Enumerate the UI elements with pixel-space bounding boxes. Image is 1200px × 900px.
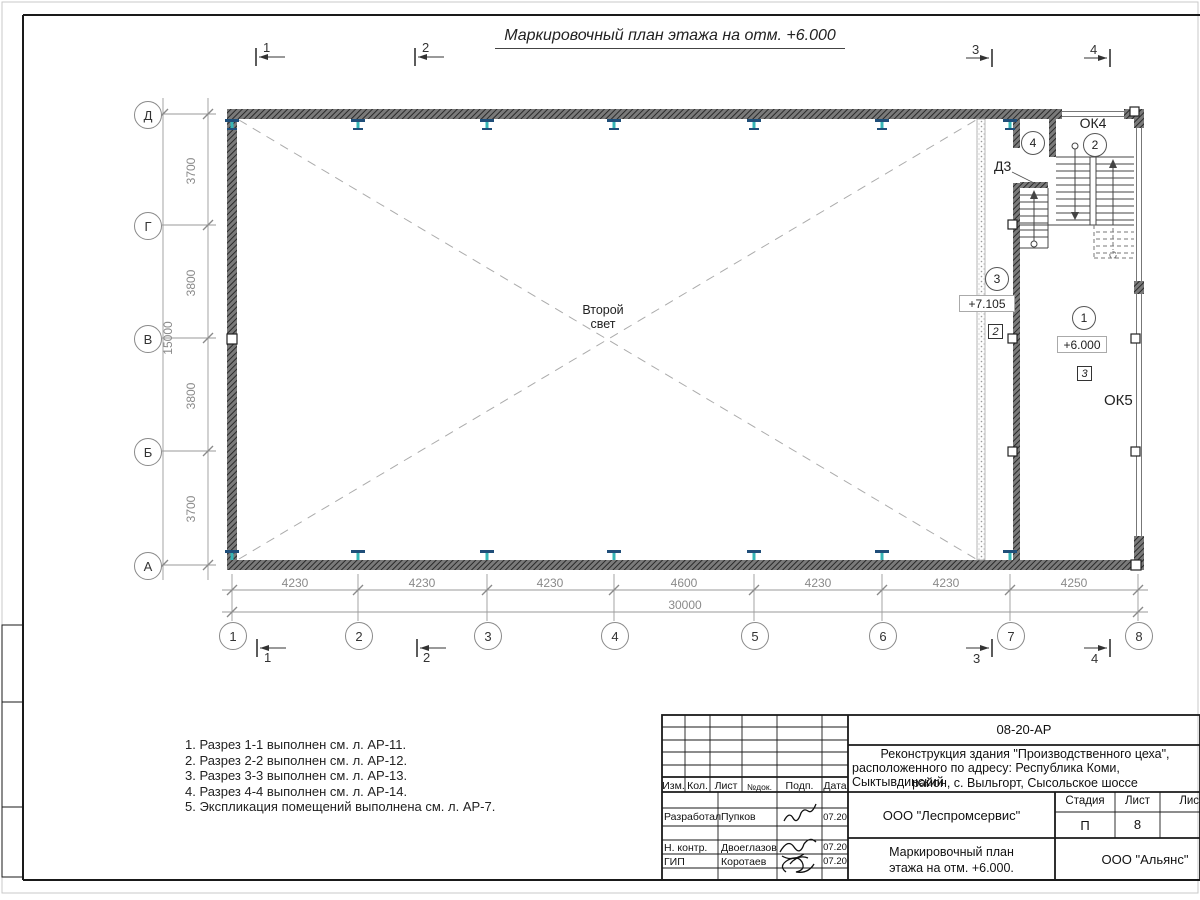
column-top-row	[225, 119, 1017, 130]
grid-col-3: 3	[474, 622, 502, 650]
grid-row-A: А	[134, 552, 162, 580]
dim-h-seg-5: 4230	[788, 576, 848, 590]
dim-v-seg-1: 3700	[184, 146, 198, 196]
grid-col-1: 1	[219, 622, 247, 650]
room-mark-3: 3	[985, 267, 1009, 291]
elevation-mark-7105: +7.105	[959, 295, 1015, 312]
titleblock-stage-value: П	[1055, 818, 1115, 833]
note-line: 1. Разрез 1-1 выполнен см. л. АР-11.	[185, 737, 495, 753]
grid-col-6: 6	[869, 622, 897, 650]
page-title: Маркировочный план этажа на отм. +6.000	[495, 27, 845, 49]
type-mark-2: 2	[988, 324, 1003, 339]
section-mark-1-top: 1	[263, 40, 270, 55]
titleblock-col-data: Дата	[822, 780, 848, 792]
titleblock-sheets-label: Листов	[1160, 795, 1200, 807]
section-mark-4-top: 4	[1090, 42, 1097, 57]
grid-row-B: Б	[134, 438, 162, 466]
dim-h-seg-6: 4230	[916, 576, 976, 590]
post-markers	[227, 107, 1141, 570]
second-light-diagonals	[239, 120, 976, 559]
section-mark-1-bottom: 1	[264, 650, 271, 665]
titleblock-date-2: 07.20	[822, 842, 848, 853]
titleblock-project-line3: район, с. Выльгорт, Сысольское шоссе	[850, 776, 1200, 790]
titleblock-col-kol: Кол.	[685, 780, 710, 792]
titleblock-col-ndok: №док.	[742, 782, 777, 792]
section-mark-3-top: 3	[972, 42, 979, 57]
drawing-sheet: Маркировочный план этажа на отм. +6.000 …	[0, 0, 1200, 900]
room-mark-1: 1	[1072, 306, 1096, 330]
dim-h-seg-2: 4230	[392, 576, 452, 590]
note-line: 2. Разрез 2-2 выполнен см. л. АР-12.	[185, 753, 495, 769]
section-mark-4-bottom: 4	[1091, 651, 1098, 666]
titleblock-sheet-label: Лист	[1115, 795, 1160, 807]
signature-razrabotal	[784, 804, 816, 821]
titleblock-date-1: 07.20	[822, 812, 848, 823]
grid-col-5: 5	[741, 622, 769, 650]
titleblock-name-pupkov: Пупков	[721, 811, 756, 823]
grid-col-8: 8	[1125, 622, 1153, 650]
titleblock-col-izm: Изм.	[662, 780, 685, 792]
side-stair	[1020, 188, 1048, 248]
titleblock-project-line1: Реконструкция здания "Производственного …	[850, 747, 1200, 761]
grid-col-2: 2	[345, 622, 373, 650]
column-bottom-row	[225, 550, 1017, 560]
titleblock-role-nkontr: Н. контр.	[664, 842, 707, 854]
dim-h-seg-1: 4230	[265, 576, 325, 590]
titleblock-doc-title-line2: этажа на отм. +6.000.	[848, 861, 1055, 875]
exterior-walls	[227, 109, 1144, 570]
grid-row-V: В	[134, 325, 162, 353]
signatures	[780, 804, 816, 872]
signature-gip	[782, 857, 814, 872]
titleblock-sheet-value: 8	[1115, 817, 1160, 832]
section-mark-2-top: 2	[422, 40, 429, 55]
window-ok5-label: ОК5	[1104, 392, 1133, 409]
titleblock-col-list: Лист	[710, 780, 742, 792]
right-wall-windows	[1134, 128, 1144, 536]
window-ok4-label: ОК4	[1065, 115, 1121, 131]
titleblock-name-korotaev: Коротаев	[721, 856, 766, 868]
elevation-mark-6000: +6.000	[1057, 336, 1107, 353]
section-mark-3-bottom: 3	[973, 651, 980, 666]
type-mark-3: 3	[1077, 366, 1092, 381]
signature-nkontr	[780, 839, 816, 858]
titleblock-role-razrabotal: Разработал	[664, 811, 721, 823]
steel-columns	[225, 107, 1141, 570]
dim-h-seg-4: 4600	[654, 576, 714, 590]
titleblock-name-dvoeglazov: Двоеглазов	[721, 842, 777, 854]
note-line: 4. Разрез 4-4 выполнен см. л. АР-14.	[185, 784, 495, 800]
titleblock-doc-code: 08-20-АР	[848, 722, 1200, 737]
note-line: 5. Экспликация помещений выполнена см. л…	[185, 799, 495, 815]
titleblock-org-name: ООО "Леспромсервис"	[848, 808, 1055, 823]
dim-h-seg-3: 4230	[520, 576, 580, 590]
second-light-label-line1: Второй	[563, 303, 643, 317]
titleblock-doc-title-line1: Маркировочный план	[848, 845, 1055, 859]
grid-col-7: 7	[997, 622, 1025, 650]
titleblock-col-podp: Подп.	[777, 780, 822, 792]
room-mark-4: 4	[1021, 131, 1045, 155]
section-mark-2-bottom: 2	[423, 650, 430, 665]
dim-total-vertical: 15000	[161, 308, 175, 368]
grid-row-D: Д	[134, 101, 162, 129]
door-d3-label: Д3	[994, 158, 1011, 174]
titleblock-customer: ООО "Альянс"	[1055, 852, 1200, 867]
dim-v-seg-2: 3800	[184, 258, 198, 308]
titleblock-date-3: 07.20	[822, 856, 848, 867]
notes-list: 1. Разрез 1-1 выполнен см. л. АР-11. 2. …	[185, 737, 495, 815]
dim-v-seg-4: 3700	[184, 484, 198, 534]
second-light-label-line2: свет	[563, 317, 643, 331]
titleblock-stage-label: Стадия	[1055, 795, 1115, 807]
grid-col-4: 4	[601, 622, 629, 650]
note-line: 3. Разрез 3-3 выполнен см. л. АР-13.	[185, 768, 495, 784]
dim-h-seg-7: 4250	[1044, 576, 1104, 590]
stair-dashed-flight	[1094, 225, 1134, 258]
grid-row-G: Г	[134, 212, 162, 240]
dim-v-seg-3: 3800	[184, 371, 198, 421]
titleblock-role-gip: ГИП	[664, 856, 685, 868]
room-mark-2: 2	[1083, 133, 1107, 157]
dim-total-horizontal: 30000	[655, 598, 715, 612]
